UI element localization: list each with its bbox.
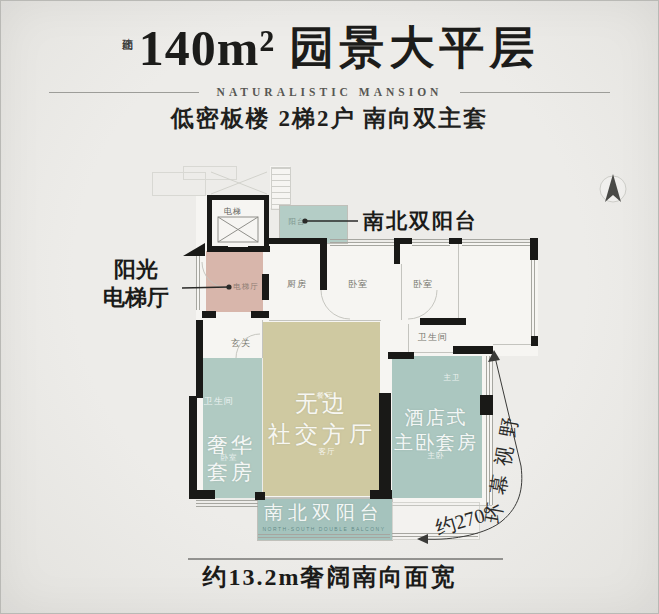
window-lines [462,239,532,246]
room-label-bedroom-2: 卧室 [413,278,433,291]
callout-elevator-hall: 阳光 电梯厅 [93,256,179,312]
room-label-bathroom-1: 卫生间 [418,331,448,344]
window-lines [258,534,390,539]
wall-segment [449,238,462,244]
zone-label-master-suite-line2: 主卧套房 [394,430,478,455]
area-value: 140m² [139,19,276,77]
neighbor-outline-2 [183,166,237,180]
partition [458,244,459,320]
wall-segment [379,393,391,495]
window-lines [531,258,537,340]
wall-segment [202,311,216,318]
zone-label-living-line2: 社交方厅 [268,419,376,450]
elevator-shaft [207,195,269,252]
tagline: 低密板楼 2梯2户 南向双主套 [0,103,659,134]
zone-label-balcony-bottom: 南北双阳台 [264,500,384,526]
room-label-elevator: 电梯 [224,206,242,217]
zone-label-left-suite-line2: 套房 [207,459,255,486]
room-label-master-bath: 主卫 [444,373,461,383]
wall-segment [255,492,265,500]
wall-segment [388,352,414,359]
subtitle-rule-left [49,92,199,93]
wall-segment [264,238,326,244]
room-label-balcony-top: 阳台 [289,217,306,227]
wall-segment [531,336,538,346]
subtitle-rule-right [460,92,610,93]
partition [401,264,402,320]
wall-segment [453,346,493,354]
wall-segment [394,238,400,264]
wall-segment [320,238,327,290]
partition [493,344,531,345]
wall-segment [480,395,493,415]
room-label-foyer: 玄关 [231,337,251,350]
partition [392,505,492,506]
dimension-label: 约13.2m奢阔南向面宽 [0,561,659,593]
partition [408,324,409,352]
area-prefix: 建面约 [120,29,135,73]
zone-label-living-line1: 无边 [268,388,376,419]
window-lines [196,252,202,310]
wall-segment [196,320,203,398]
balcony-caption-en: NORTH-SOUTH DOUBLE BALCONY [262,526,385,532]
wall-segment [251,311,269,318]
zone-label-left-suite: 奢华 套房 [207,432,255,486]
callout-elevator-hall-line1: 阳光 [93,256,179,284]
floorplan-poster: 建面约 140m² 园景大平层 NATURALISTIC MANSION 低密板… [0,0,659,614]
wall-segment [189,490,215,499]
wall-segment [420,318,466,325]
window-lines [330,239,396,246]
room-label-bathroom-2: 卫生间 [204,395,234,408]
zone-label-living: 无边 社交方厅 [268,388,376,450]
north-arrow-icon [600,174,626,202]
wall-segment [248,246,270,252]
window-lines [196,500,258,508]
room-label-elevator-hall: 电梯厅 [233,282,259,292]
room-label-kitchen: 厨房 [287,278,307,291]
zone-label-left-suite-line1: 奢华 [207,432,255,459]
stairs-hatch [271,167,291,210]
partition [263,497,380,498]
partition [262,320,263,358]
page-title: 建面约 140m² 园景大平层 [0,18,659,78]
wall-segment [530,238,538,260]
subtitle-row: NATURALISTIC MANSION [0,86,659,98]
wall-wedge [183,243,205,256]
wall-segment [212,246,228,252]
subtitle-en: NATURALISTIC MANSION [217,86,443,98]
wall-segment [262,274,269,300]
zone-label-master-suite-line1: 酒店式 [394,405,478,430]
window-lines [412,239,450,246]
callout-elevator-hall-line2: 电梯厅 [93,284,179,312]
callout-balcony-top: 南北双阳台 [363,207,478,235]
zone-label-master-suite: 酒店式 主卧套房 [394,405,478,455]
window-lines [486,356,494,505]
wall-segment [189,396,197,496]
title-text: 园景大平层 [289,18,539,78]
partition [269,320,381,321]
room-label-bedroom-1: 卧室 [348,278,368,291]
wall-segment [370,490,392,499]
window-lines [392,533,478,538]
